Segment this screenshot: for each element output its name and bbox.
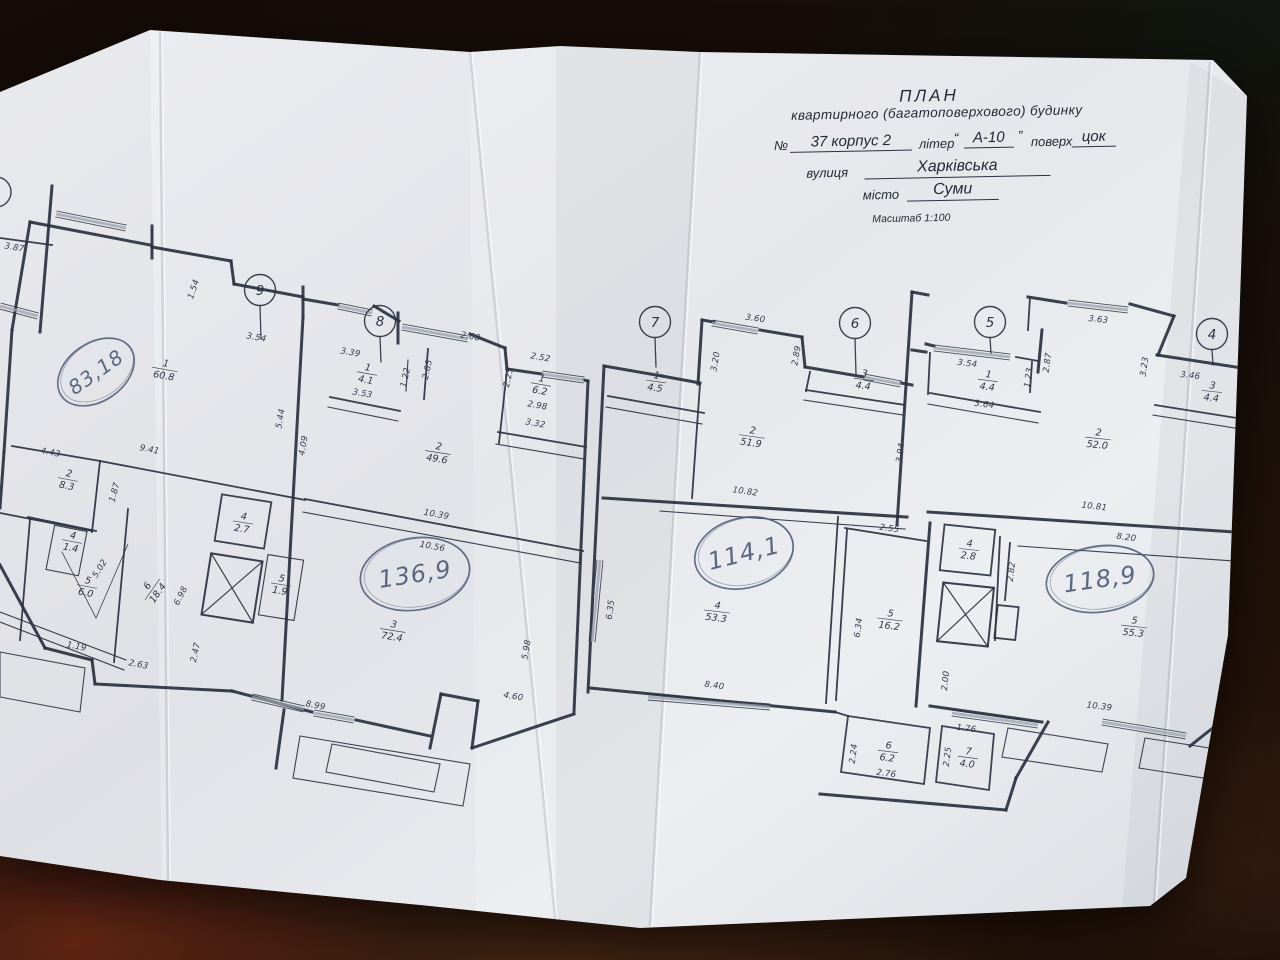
room-area: 4.0	[959, 758, 975, 771]
axis-number: 4	[1208, 327, 1217, 343]
wall-line	[912, 350, 926, 352]
room-area: 2.8	[960, 550, 976, 563]
fold-shade	[0, 30, 162, 880]
wall-line	[702, 320, 714, 322]
dimension-label: 2.00	[940, 670, 952, 691]
room-number: 4	[966, 538, 973, 550]
room-number: 2	[1095, 427, 1102, 439]
room-area: 4.5	[647, 382, 664, 395]
room-area: 55.3	[1122, 627, 1144, 640]
wall-line	[1264, 372, 1268, 410]
room-area: 4.4	[979, 381, 995, 394]
room-number: 3	[1209, 380, 1216, 392]
room-number: 5	[1131, 615, 1138, 627]
photo-of-floorplan: { "photo": {"paper_color":"#e9eaee","ink…	[0, 0, 1280, 960]
room-area: 4.4	[1203, 392, 1219, 405]
room-area: 52.0	[1086, 439, 1108, 452]
dimension-label: 3.46	[1180, 370, 1201, 382]
axis-number: 6	[851, 316, 860, 332]
axis-number: 7	[651, 315, 660, 331]
room-area: 6.2	[879, 752, 895, 765]
room-area: 4.4	[855, 380, 871, 393]
dimension-label: 1.26	[1251, 377, 1263, 398]
axis-number: 9	[256, 283, 265, 299]
wall-line	[1250, 410, 1264, 545]
wall-line	[505, 348, 507, 369]
axis-number: 8	[376, 314, 385, 330]
dimension-label: 3.63	[1088, 314, 1109, 326]
axis-number: 5	[986, 315, 995, 331]
wall-line	[1247, 545, 1250, 698]
wall-line	[926, 344, 934, 346]
fold-shade	[160, 31, 476, 930]
dimension-label: 3.63	[1248, 455, 1260, 476]
floorplan-photo-canvas: 987654160.828.341.456.0618.442.751.9249.…	[0, 0, 1280, 960]
dimension-label: 6.36	[1236, 632, 1248, 653]
